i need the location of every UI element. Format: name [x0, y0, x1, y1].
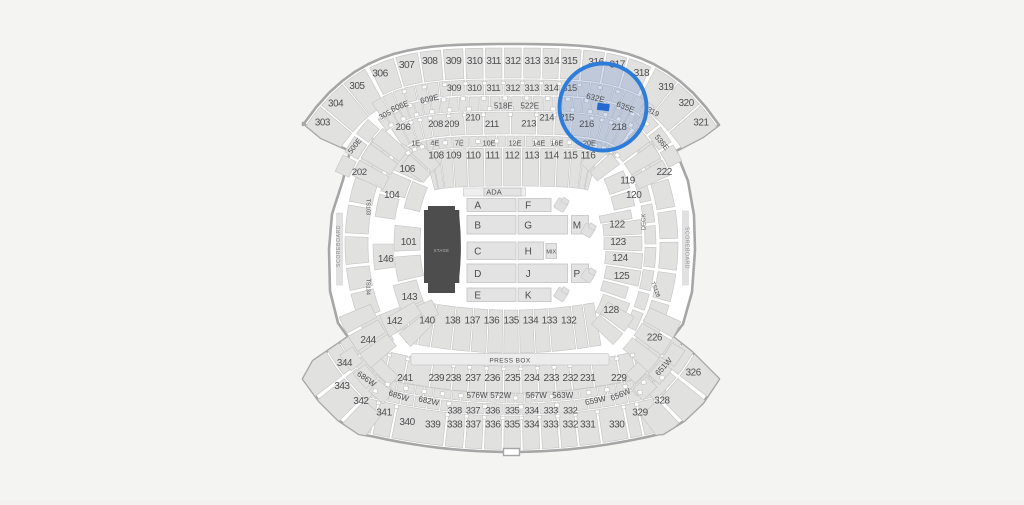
svg-text:329: 329 — [632, 408, 648, 419]
svg-text:206: 206 — [396, 122, 411, 133]
svg-text:343: 343 — [334, 381, 350, 392]
svg-text:338: 338 — [447, 405, 462, 415]
svg-text:572W: 572W — [490, 391, 511, 400]
svg-text:234: 234 — [524, 373, 540, 384]
svg-text:D: D — [474, 269, 481, 280]
svg-text:B: B — [474, 220, 481, 231]
svg-text:303: 303 — [315, 118, 331, 129]
svg-text:229: 229 — [611, 373, 627, 384]
svg-text:336: 336 — [486, 405, 501, 415]
svg-text:TS134: TS134 — [365, 279, 371, 295]
svg-text:STAGE: STAGE — [434, 248, 449, 253]
svg-text:244: 244 — [360, 335, 376, 346]
svg-text:337: 337 — [465, 420, 481, 431]
svg-text:567W: 567W — [526, 391, 547, 400]
svg-text:G: G — [524, 220, 532, 231]
svg-text:ADA: ADA — [486, 188, 501, 197]
svg-text:209: 209 — [444, 119, 459, 130]
svg-text:312: 312 — [506, 83, 521, 93]
svg-text:M: M — [573, 221, 581, 232]
svg-text:310: 310 — [467, 83, 482, 93]
svg-text:335: 335 — [504, 420, 520, 431]
svg-text:241: 241 — [397, 373, 413, 384]
svg-text:F: F — [525, 201, 531, 212]
svg-text:125: 125 — [614, 271, 630, 282]
svg-text:313: 313 — [525, 56, 541, 67]
svg-text:115: 115 — [563, 151, 579, 162]
svg-text:333: 333 — [544, 405, 559, 415]
svg-text:133: 133 — [542, 315, 558, 326]
svg-text:214: 214 — [539, 113, 555, 124]
svg-text:309: 309 — [447, 83, 462, 93]
svg-text:222: 222 — [656, 167, 672, 178]
svg-text:202: 202 — [352, 167, 367, 178]
svg-text:110: 110 — [466, 151, 482, 162]
svg-text:124: 124 — [612, 253, 628, 264]
svg-text:338: 338 — [447, 420, 463, 431]
svg-text:334: 334 — [524, 420, 540, 431]
svg-text:208: 208 — [428, 119, 443, 130]
svg-text:116: 116 — [581, 151, 597, 162]
svg-text:239: 239 — [429, 373, 445, 384]
svg-text:143: 143 — [402, 292, 418, 303]
svg-text:307: 307 — [399, 60, 415, 71]
svg-text:112: 112 — [505, 151, 521, 162]
svg-text:236: 236 — [485, 373, 501, 384]
svg-text:106: 106 — [399, 164, 415, 175]
svg-text:104: 104 — [384, 190, 400, 201]
svg-text:337: 337 — [466, 405, 481, 415]
svg-text:238: 238 — [446, 373, 462, 384]
svg-text:DECK: DECK — [642, 214, 648, 231]
svg-text:305: 305 — [349, 81, 365, 92]
svg-text:306: 306 — [372, 69, 388, 80]
svg-text:109: 109 — [446, 151, 462, 162]
svg-text:J: J — [526, 269, 531, 280]
svg-text:321: 321 — [693, 118, 708, 129]
svg-text:522E: 522E — [520, 102, 539, 111]
svg-text:PRESS BOX: PRESS BOX — [489, 357, 530, 364]
svg-text:128: 128 — [603, 305, 619, 316]
svg-text:226: 226 — [647, 333, 663, 344]
svg-text:122: 122 — [609, 220, 625, 231]
svg-text:114: 114 — [544, 151, 560, 162]
svg-text:4E: 4E — [430, 138, 439, 147]
svg-text:340: 340 — [399, 417, 415, 428]
svg-text:111: 111 — [485, 151, 500, 162]
svg-text:335: 335 — [505, 405, 520, 415]
svg-text:138: 138 — [445, 315, 461, 326]
svg-text:314: 314 — [544, 56, 560, 67]
svg-text:MIX: MIX — [546, 250, 556, 256]
svg-text:563W: 563W — [552, 391, 573, 400]
svg-text:211: 211 — [485, 119, 499, 130]
svg-text:216: 216 — [579, 119, 594, 130]
svg-text:326: 326 — [686, 368, 702, 379]
svg-text:235: 235 — [505, 373, 521, 384]
svg-text:218: 218 — [612, 122, 627, 133]
svg-text:101: 101 — [401, 237, 417, 248]
svg-text:119: 119 — [620, 176, 636, 187]
svg-text:10E: 10E — [483, 138, 496, 147]
svg-text:311: 311 — [486, 56, 502, 67]
svg-text:A: A — [474, 201, 481, 212]
svg-text:136: 136 — [484, 315, 500, 326]
svg-text:108: 108 — [428, 151, 444, 162]
svg-text:237: 237 — [465, 373, 481, 384]
svg-text:332: 332 — [563, 420, 579, 431]
svg-text:7E: 7E — [455, 138, 464, 147]
svg-text:135: 135 — [503, 315, 519, 326]
svg-text:330: 330 — [609, 420, 625, 431]
svg-text:123: 123 — [610, 237, 626, 248]
svg-text:146: 146 — [378, 254, 394, 265]
svg-text:333: 333 — [543, 420, 559, 431]
svg-text:14E: 14E — [532, 138, 545, 147]
svg-text:309: 309 — [446, 56, 462, 67]
svg-text:210: 210 — [465, 113, 480, 124]
svg-text:SCOREBOARD: SCOREBOARD — [683, 227, 689, 269]
svg-text:140: 140 — [419, 315, 435, 326]
svg-text:132: 132 — [561, 315, 577, 326]
svg-text:311: 311 — [486, 83, 500, 93]
svg-text:320: 320 — [679, 98, 695, 109]
svg-text:C: C — [474, 246, 481, 257]
svg-text:231: 231 — [580, 373, 596, 384]
svg-text:314: 314 — [544, 83, 559, 93]
svg-text:142: 142 — [387, 316, 403, 327]
svg-text:342: 342 — [353, 396, 368, 407]
svg-text:341: 341 — [376, 408, 392, 419]
svg-text:339: 339 — [425, 420, 441, 431]
svg-text:334: 334 — [524, 405, 539, 415]
svg-text:328: 328 — [654, 396, 670, 407]
svg-text:P: P — [574, 269, 581, 280]
svg-text:213: 213 — [521, 119, 536, 130]
svg-text:315: 315 — [562, 56, 578, 67]
svg-text:12E: 12E — [509, 138, 522, 147]
svg-text:120: 120 — [626, 190, 642, 201]
svg-text:232: 232 — [563, 373, 579, 384]
svg-text:134: 134 — [523, 315, 539, 326]
svg-text:K: K — [525, 290, 532, 301]
svg-text:319: 319 — [658, 82, 673, 93]
svg-text:113: 113 — [524, 151, 540, 162]
svg-text:332: 332 — [563, 405, 578, 415]
svg-text:308: 308 — [422, 56, 438, 67]
svg-text:312: 312 — [505, 56, 521, 67]
svg-text:TS103: TS103 — [365, 199, 371, 215]
svg-text:344: 344 — [337, 358, 353, 369]
svg-text:576W: 576W — [467, 391, 488, 400]
svg-text:16E: 16E — [551, 138, 564, 147]
svg-text:H: H — [525, 246, 532, 257]
svg-text:336: 336 — [485, 420, 501, 431]
svg-text:310: 310 — [467, 56, 483, 67]
svg-text:331: 331 — [580, 420, 596, 431]
svg-text:304: 304 — [328, 98, 344, 109]
svg-text:SCOREBOARD: SCOREBOARD — [336, 225, 342, 267]
svg-text:233: 233 — [544, 373, 560, 384]
svg-text:1E: 1E — [411, 138, 420, 147]
svg-text:137: 137 — [465, 315, 481, 326]
svg-text:E: E — [474, 290, 481, 301]
svg-text:313: 313 — [525, 83, 540, 93]
svg-text:518E: 518E — [494, 102, 513, 111]
